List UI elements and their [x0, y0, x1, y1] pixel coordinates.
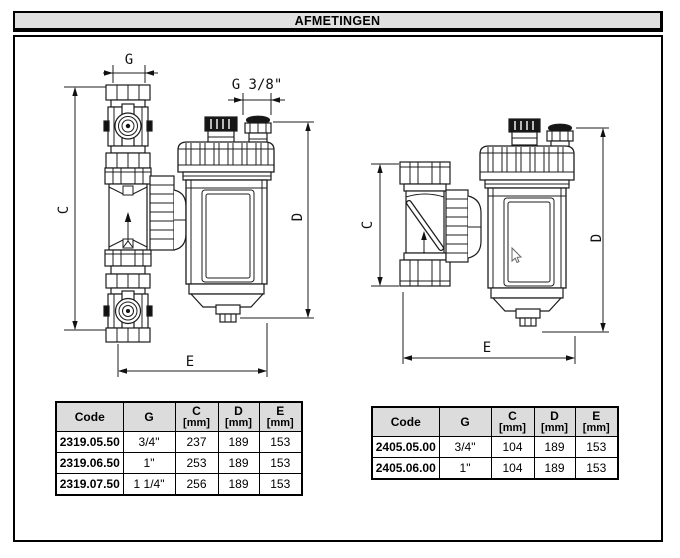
cell-c: 256: [175, 474, 218, 496]
table-row: 2319.05.50 3/4" 237 189 153: [56, 432, 302, 453]
dim-label-g38: G 3/8": [232, 77, 283, 93]
col-header-c: C[mm]: [175, 402, 218, 432]
cell-code: 2319.07.50: [56, 474, 123, 496]
cell-g: 1 1/4": [123, 474, 175, 496]
valve-pipe-assembly: [104, 85, 186, 342]
cell-code: 2405.05.00: [372, 437, 439, 458]
cell-c: 104: [491, 458, 534, 480]
cell-e: 153: [259, 474, 302, 496]
dim-label-e: E: [483, 340, 491, 356]
cell-d: 189: [218, 453, 259, 474]
dim-label-c: C: [360, 221, 376, 229]
section-title-bar: AFMETINGEN: [13, 11, 663, 32]
cell-e: 153: [575, 437, 618, 458]
cell-c: 237: [175, 432, 218, 453]
cell-g: 3/4": [123, 432, 175, 453]
dim-label-d: D: [290, 213, 306, 221]
cell-d: 189: [534, 437, 575, 458]
col-header-c: C[mm]: [491, 407, 534, 437]
cell-e: 153: [259, 432, 302, 453]
cell-g: 1": [439, 458, 491, 480]
pipe-assembly-right: [400, 162, 481, 286]
datasheet-page: AFMETINGEN: [0, 0, 680, 558]
dim-label-c: C: [56, 206, 72, 214]
cell-c: 253: [175, 453, 218, 474]
cell-code: 2319.06.50: [56, 453, 123, 474]
col-header-e: E[mm]: [575, 407, 618, 437]
table-row: 2319.07.50 1 1/4" 256 189 153: [56, 474, 302, 496]
col-header-code: Code: [372, 407, 439, 437]
cell-code: 2319.05.50: [56, 432, 123, 453]
col-header-code: Code: [56, 402, 123, 432]
col-header-g: G: [439, 407, 491, 437]
cell-d: 189: [534, 458, 575, 480]
technical-drawing-filter-with-valves: G G 3/8" C D E: [40, 48, 332, 396]
table-header-row: Code G C[mm] D[mm] E[mm]: [56, 402, 302, 432]
dimensions-table-2319: Code G C[mm] D[mm] E[mm] 2319.05.50 3/4"…: [55, 401, 303, 496]
cell-c: 104: [491, 437, 534, 458]
table-row: 2405.06.00 1" 104 189 153: [372, 458, 618, 480]
cell-d: 189: [218, 474, 259, 496]
dimensions-table-2405: Code G C[mm] D[mm] E[mm] 2405.05.00 3/4"…: [371, 406, 619, 480]
dim-label-g: G: [125, 52, 133, 68]
table-row: 2405.05.00 3/4" 104 189 153: [372, 437, 618, 458]
cell-g: 1": [123, 453, 175, 474]
cell-code: 2405.06.00: [372, 458, 439, 480]
col-header-d: D[mm]: [218, 402, 259, 432]
technical-drawing-filter: C D E: [352, 100, 622, 372]
filter-body-left: [178, 116, 274, 322]
cell-d: 189: [218, 432, 259, 453]
col-header-g: G: [123, 402, 175, 432]
table-header-row: Code G C[mm] D[mm] E[mm]: [372, 407, 618, 437]
cell-g: 3/4": [439, 437, 491, 458]
col-header-d: D[mm]: [534, 407, 575, 437]
filter-body-right: [480, 119, 574, 326]
table-row: 2319.06.50 1" 253 189 153: [56, 453, 302, 474]
section-title: AFMETINGEN: [295, 14, 381, 28]
cell-e: 153: [575, 458, 618, 480]
dim-label-d: D: [589, 234, 605, 242]
dim-label-e: E: [186, 354, 194, 370]
col-header-e: E[mm]: [259, 402, 302, 432]
cell-e: 153: [259, 453, 302, 474]
